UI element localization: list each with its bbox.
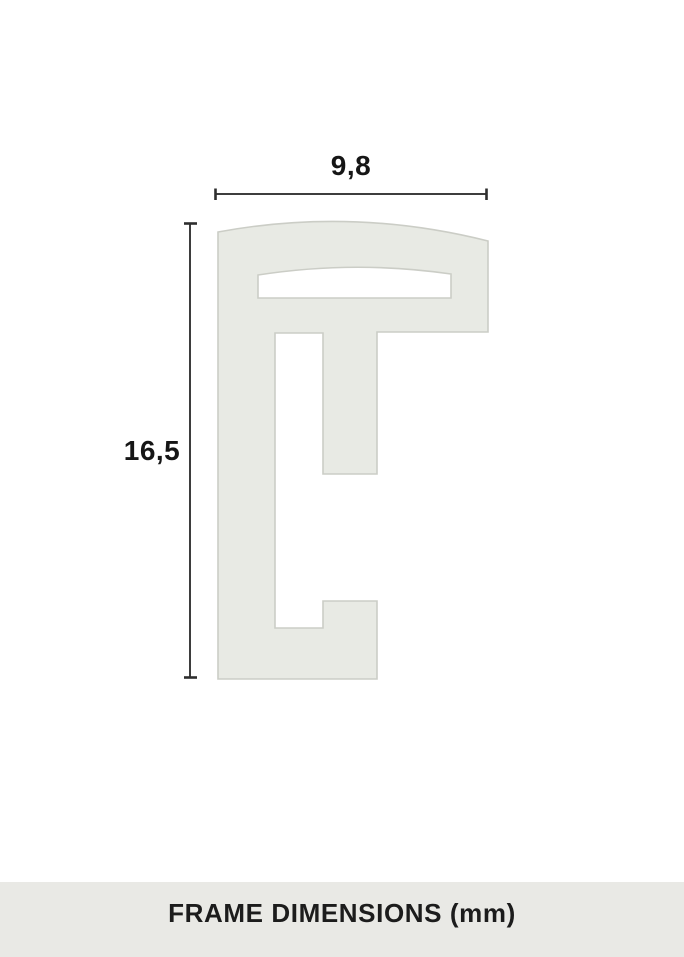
width-dimension-line <box>215 189 487 201</box>
profile-drawing <box>0 0 684 880</box>
height-dimension-label: 16,5 <box>124 435 181 467</box>
width-dimension-label: 9,8 <box>331 150 371 182</box>
caption-band: FRAME DIMENSIONS (mm) <box>0 882 684 957</box>
caption: FRAME DIMENSIONS (mm) <box>0 898 684 929</box>
height-dimension-line <box>184 223 197 678</box>
frame-profile-shape <box>218 221 488 679</box>
frame-dimension-diagram: 9,8 16,5 FRAME DIMENSIONS (mm) <box>0 0 684 957</box>
